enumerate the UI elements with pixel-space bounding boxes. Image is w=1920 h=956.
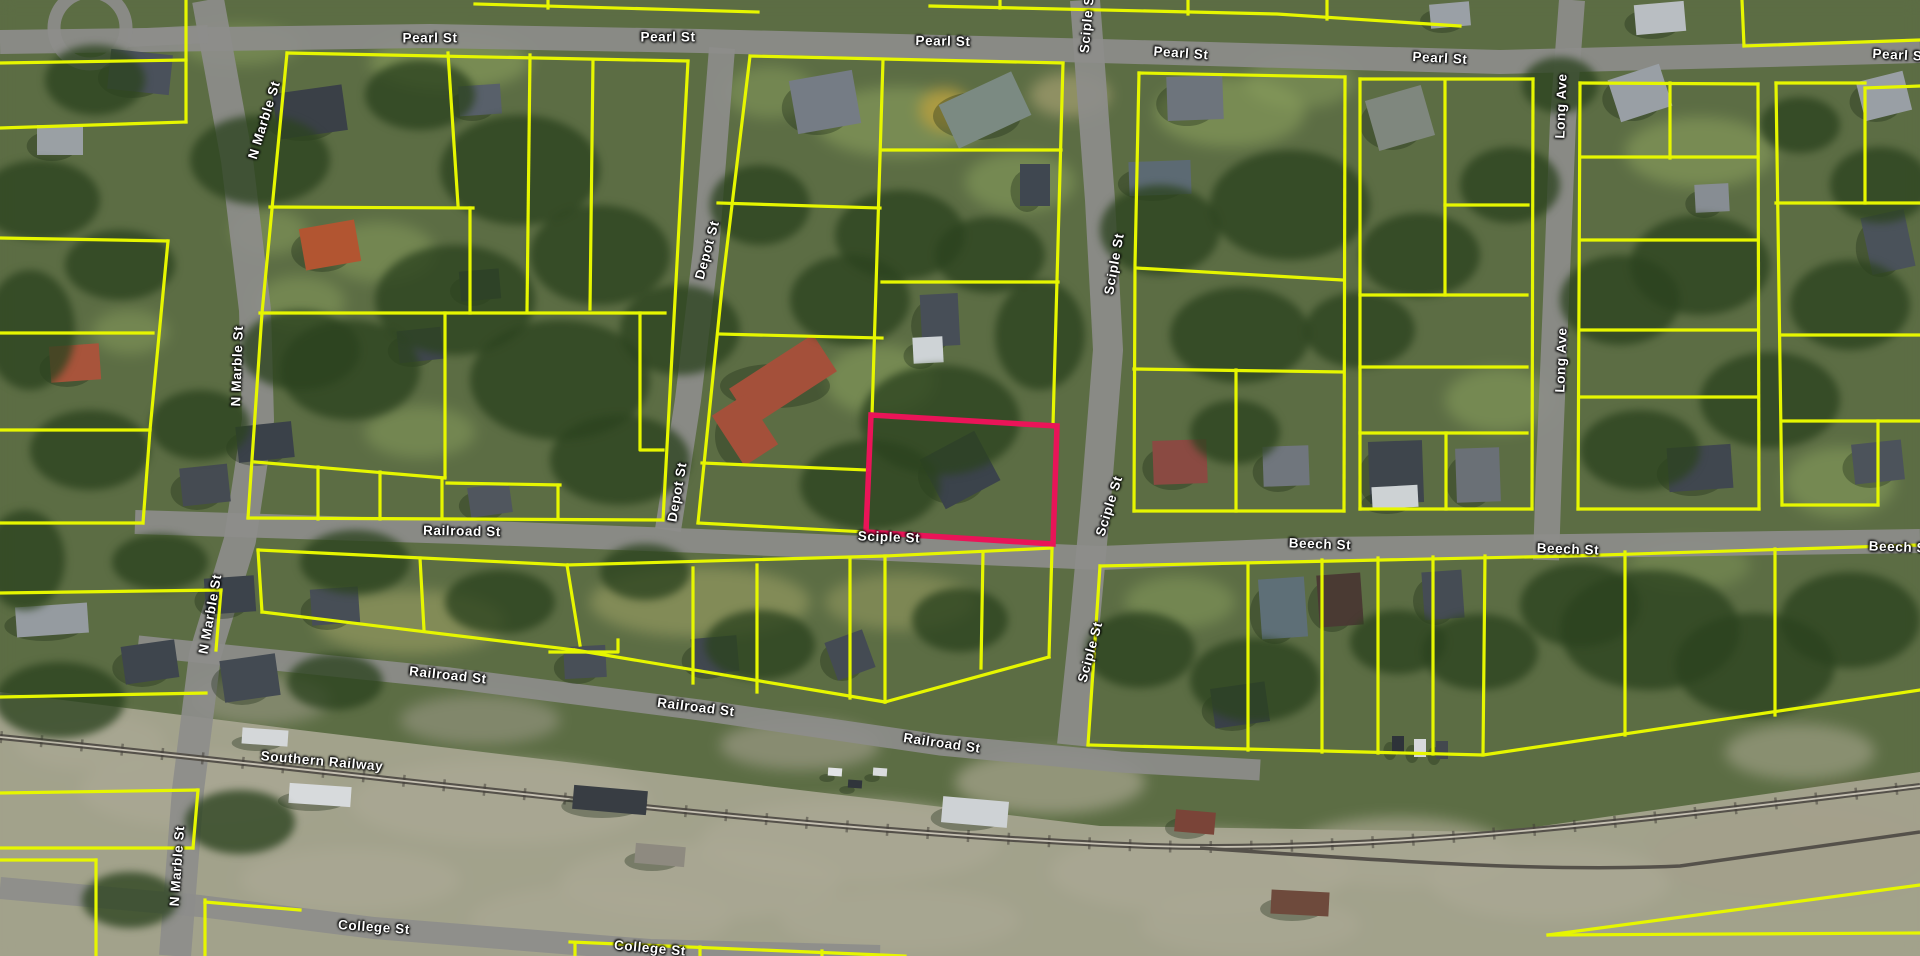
building-footprint: [1258, 576, 1308, 639]
parcel-boundary[interactable]: [248, 518, 663, 520]
parcel-boundary[interactable]: [447, 483, 560, 485]
building-footprint: [121, 639, 180, 684]
building-footprint: [873, 768, 888, 777]
building-footprint: [241, 727, 288, 746]
parcel-boundary[interactable]: [1548, 933, 1920, 935]
building-footprint: [848, 780, 863, 789]
building-footprint: [204, 575, 256, 614]
parcel-boundary[interactable]: [1344, 77, 1345, 511]
parcel-boundary[interactable]: [1532, 79, 1533, 509]
building-footprint: [828, 768, 843, 777]
building-footprint: [1694, 183, 1729, 213]
building-footprint: [179, 464, 231, 507]
parcel-boundary[interactable]: [1483, 556, 1485, 755]
building-footprint: [467, 482, 513, 518]
aerial-parcel-map: [0, 0, 1920, 956]
building-footprint: [1421, 570, 1464, 621]
parcel-boundary[interactable]: [1578, 83, 1580, 509]
building-footprint: [219, 653, 280, 702]
building-footprint: [912, 336, 943, 364]
parcel-boundary[interactable]: [270, 207, 473, 208]
building-footprint: [1020, 164, 1050, 206]
parcel-boundary[interactable]: [981, 552, 983, 668]
building-footprint: [1166, 75, 1224, 121]
building-footprint: [1270, 889, 1329, 916]
parcel-boundary[interactable]: [1742, 0, 1744, 46]
building-footprint: [1371, 485, 1418, 509]
building-footprint: [789, 70, 861, 134]
building-footprint: [1455, 447, 1501, 503]
building-footprint: [1634, 1, 1686, 35]
road-culdesac-stub: [128, 34, 208, 38]
parcel-boundary[interactable]: [1865, 86, 1920, 88]
map-viewport[interactable]: Pearl StPearl StPearl StPearl StPearl St…: [0, 0, 1920, 956]
parcel-boundary[interactable]: [1758, 84, 1759, 509]
building-footprint: [1436, 741, 1448, 759]
building-footprint: [37, 125, 83, 155]
building-footprint: [1174, 809, 1216, 834]
